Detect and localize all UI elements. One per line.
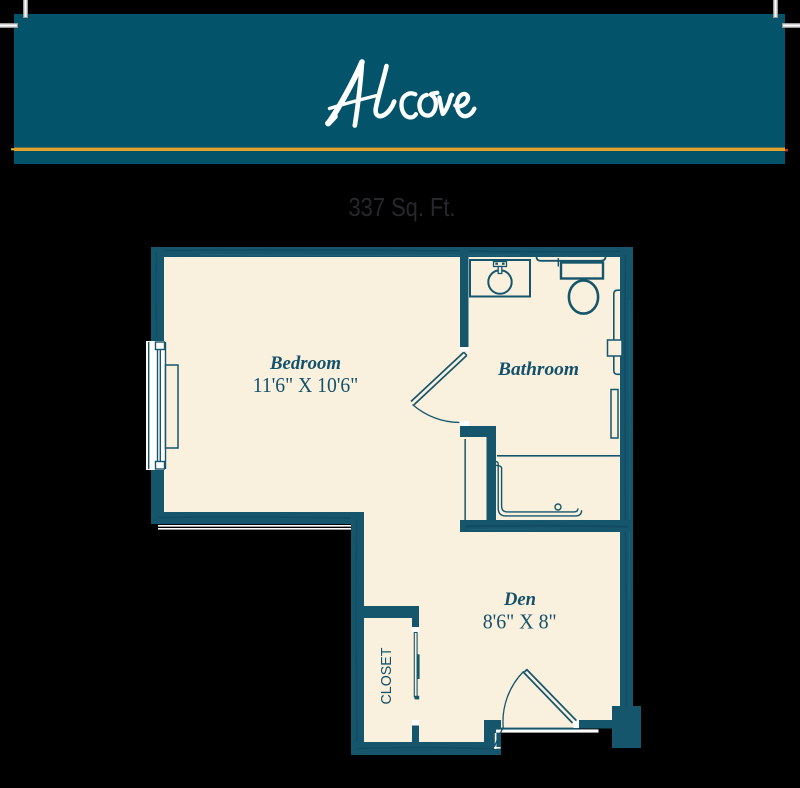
svg-text:337 Sq. Ft.: 337 Sq. Ft. bbox=[349, 192, 456, 222]
svg-text:CLOSET: CLOSET bbox=[378, 648, 395, 705]
svg-text:Bedroom: Bedroom bbox=[269, 353, 341, 374]
svg-text:8'6" X 8": 8'6" X 8" bbox=[483, 609, 557, 633]
svg-text:11'6" X 10'6": 11'6" X 10'6" bbox=[253, 373, 359, 397]
svg-text:Den: Den bbox=[503, 589, 536, 610]
svg-text:Bathroom: Bathroom bbox=[497, 359, 579, 380]
